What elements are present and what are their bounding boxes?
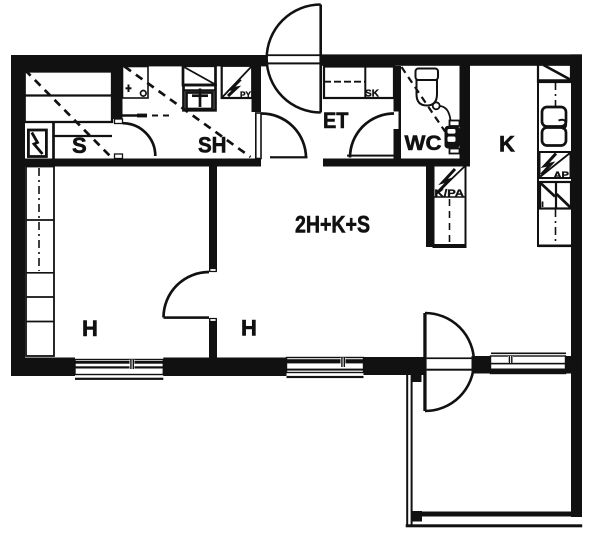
svg-text:H: H bbox=[82, 316, 98, 341]
svg-text:SH: SH bbox=[198, 133, 227, 158]
svg-text:ET: ET bbox=[323, 108, 349, 133]
svg-text:S: S bbox=[72, 133, 87, 158]
svg-text:K/PA: K/PA bbox=[435, 189, 465, 200]
svg-text:2H+K+S: 2H+K+S bbox=[295, 212, 370, 239]
svg-text:SK: SK bbox=[365, 88, 379, 100]
svg-text:WC: WC bbox=[405, 132, 442, 155]
svg-text:PY: PY bbox=[240, 90, 251, 100]
svg-text:H: H bbox=[241, 316, 257, 341]
svg-text:AP: AP bbox=[554, 170, 570, 180]
svg-text:K: K bbox=[499, 132, 515, 157]
